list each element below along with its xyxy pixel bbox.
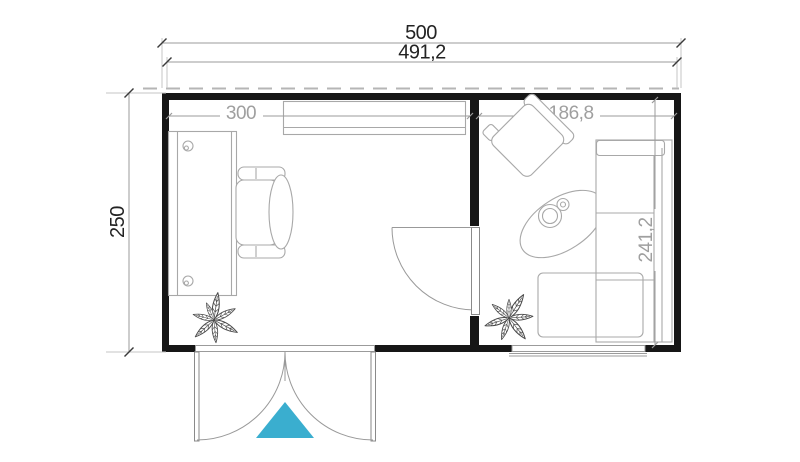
chair-backrest [269, 175, 293, 249]
wall-interior-lower [470, 316, 479, 345]
dim-label-frame-width: 491,2 [398, 42, 446, 64]
wall-left [162, 93, 169, 352]
window-frame [512, 346, 645, 352]
shelf-body [284, 102, 466, 135]
wall-top [162, 93, 681, 100]
floor-plan-page: 300 186,8 [0, 0, 800, 457]
dim-lounge-width: 186,8 [476, 103, 677, 124]
plant-office [192, 292, 238, 343]
wall-bottom-left [162, 345, 195, 352]
wall-right [674, 93, 681, 352]
interior-door [392, 228, 480, 315]
dim-label-office-width: 300 [226, 103, 256, 124]
armchair [481, 87, 576, 182]
door-leaf-left [195, 352, 200, 441]
desk-top [169, 132, 237, 296]
dim-frame-width: 491,2 [163, 42, 682, 89]
dim-label-overall-depth: 250 [107, 206, 129, 238]
door-leaf-right [371, 352, 376, 441]
dim-label-interior-depth: 241,2 [636, 217, 657, 262]
wall-bottom-right [645, 345, 681, 352]
floor-plan-canvas: 300 186,8 [0, 0, 800, 457]
lounge-window [509, 346, 647, 357]
desk [169, 132, 237, 296]
wall-bottom-middle [375, 345, 512, 352]
entrance-double-door [195, 352, 376, 441]
office-chair [236, 167, 293, 258]
door-swing-arc [392, 228, 475, 311]
entrance-opening-frame [196, 346, 375, 352]
entrance-marker-triangle [256, 402, 314, 438]
wall-shelf [284, 102, 466, 135]
sofa-body [596, 140, 672, 342]
door-leaf [472, 228, 480, 315]
wall-interior-upper [470, 100, 479, 226]
plant-lounge [480, 284, 543, 349]
dim-overall-depth: 250 [106, 89, 166, 357]
